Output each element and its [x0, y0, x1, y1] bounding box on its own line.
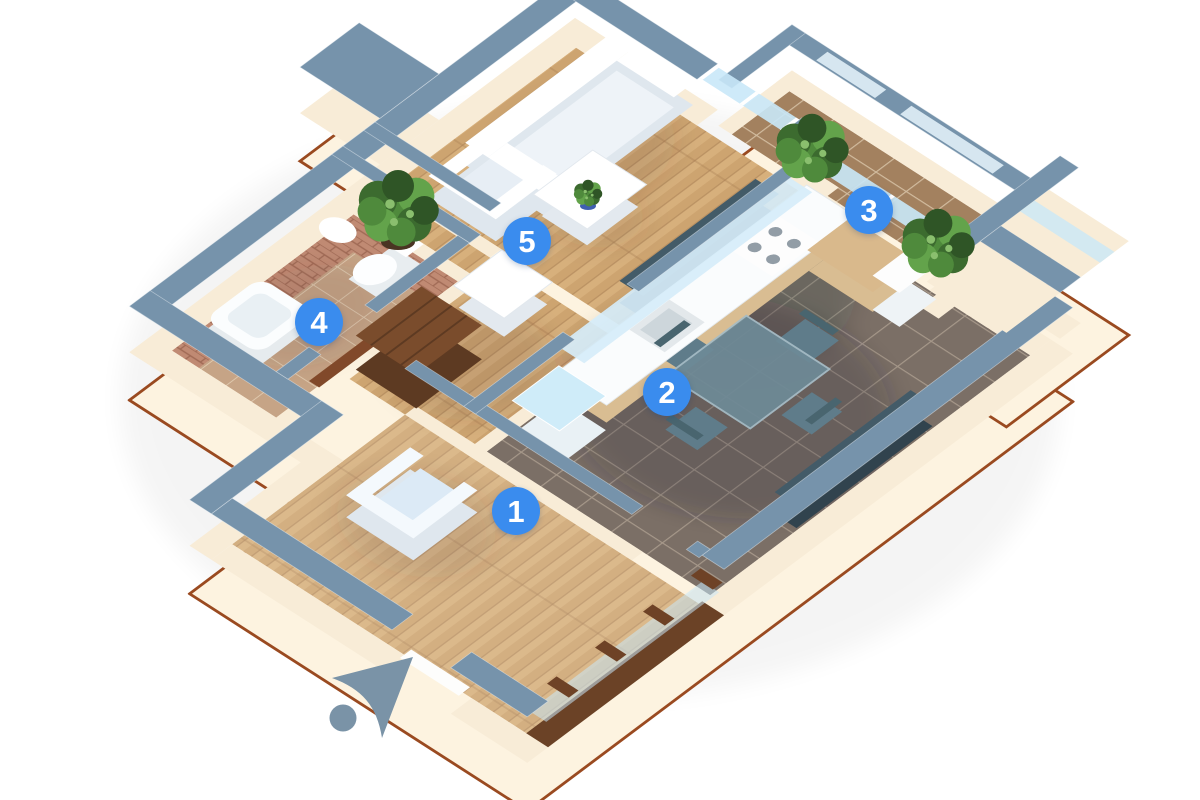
room-marker-1-bedroom[interactable]: 1 — [492, 487, 540, 535]
floorplan-3d — [0, 0, 1200, 800]
floorplan-render: 1 2 3 4 5 — [0, 0, 1200, 800]
room-marker-5-living-room[interactable]: 5 — [503, 217, 551, 265]
compass-dot-icon — [330, 705, 357, 732]
room-marker-2-kitchen-dining[interactable]: 2 — [643, 368, 691, 416]
room-marker-4-bathroom[interactable]: 4 — [295, 298, 343, 346]
room-marker-3-balcony[interactable]: 3 — [845, 186, 893, 234]
